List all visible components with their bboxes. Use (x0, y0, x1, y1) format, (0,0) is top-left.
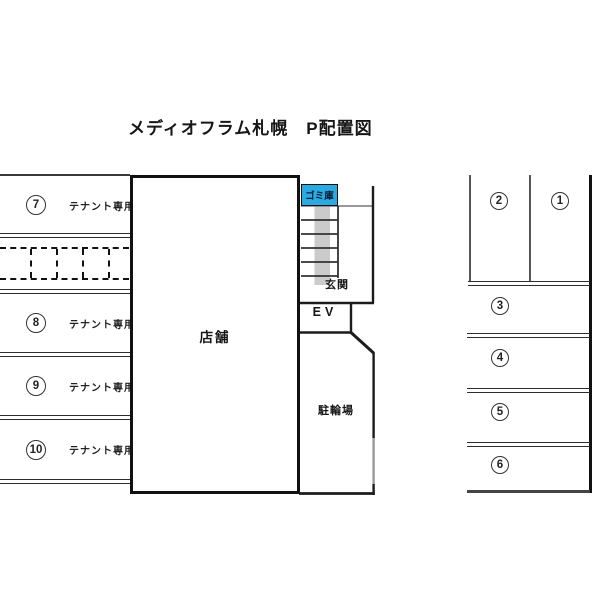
parking-space-8: 8 テナント専用 (0, 294, 130, 352)
space-number: 7 (26, 195, 46, 215)
space-number: 8 (26, 313, 46, 333)
building-outline (295, 180, 380, 500)
parking-divider (468, 281, 590, 286)
dashed-divider (108, 249, 110, 278)
parking-space-7: 7 テナント専用 (0, 177, 130, 233)
dashed-walkway (0, 247, 129, 280)
stall-divider (469, 175, 471, 282)
dashed-divider (30, 249, 32, 278)
garbage-room: ゴミ庫 (301, 184, 338, 206)
diagonal-wall (351, 333, 374, 354)
parking-divider (467, 388, 590, 393)
parking-space-4: 4 (491, 349, 509, 367)
parking-space-5: 5 (491, 403, 509, 421)
parking-space-6: 6 (491, 456, 509, 474)
parking-divider (467, 442, 590, 447)
space-number: 9 (26, 376, 46, 396)
parking-divider (467, 333, 590, 338)
parking-space-3: 3 (491, 297, 509, 315)
left-block-top-line (0, 174, 130, 176)
tenant-only-label: テナント専用 (69, 379, 135, 394)
space-number: 10 (26, 440, 46, 460)
entrance-label: 玄関 (300, 276, 374, 292)
dashed-divider (56, 249, 58, 278)
parking-space-1: 1 (551, 192, 569, 210)
stall-divider (529, 175, 531, 282)
parking-space-2: 2 (490, 192, 508, 210)
right-block-bottom-line (467, 490, 590, 493)
store-label: 店舗 (130, 326, 300, 346)
parking-space-10: 10 テナント専用 (0, 420, 130, 479)
dashed-divider (82, 249, 84, 278)
garbage-room-label: ゴミ庫 (305, 188, 334, 202)
tenant-only-label: テナント専用 (69, 442, 135, 457)
bicycle-parking-label: 駐輪場 (297, 402, 375, 418)
diagram-title: メディオフラム札幌 P配置図 (128, 114, 373, 139)
tenant-only-label: テナント専用 (69, 198, 135, 213)
parking-divider (0, 233, 130, 238)
parking-divider (0, 479, 130, 484)
tenant-only-label: テナント専用 (69, 316, 135, 331)
elevator-label: EV (300, 305, 350, 319)
stairs-stripe (315, 206, 331, 285)
parking-space-9: 9 テナント専用 (0, 357, 130, 415)
